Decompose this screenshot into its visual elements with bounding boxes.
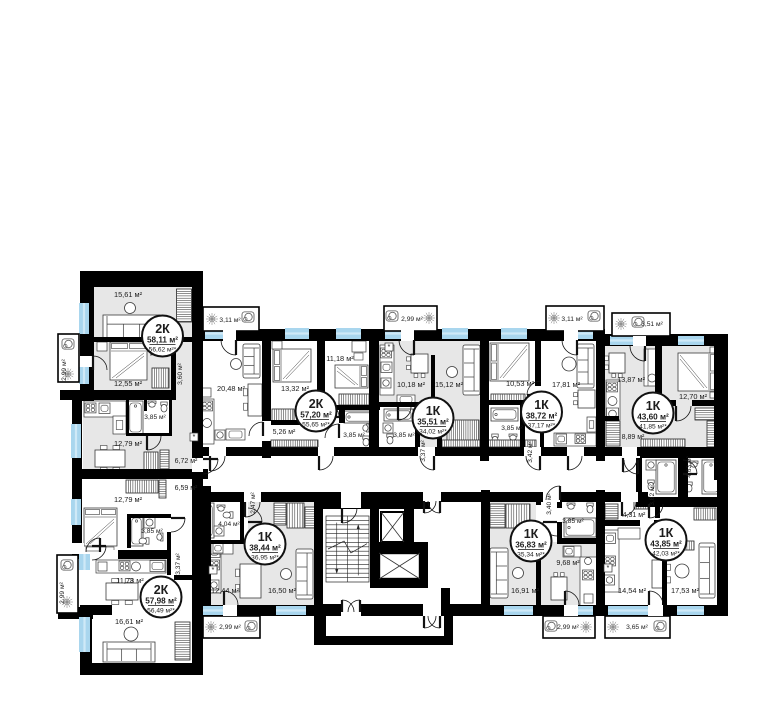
svg-text:3,65 м²: 3,65 м² xyxy=(626,624,648,631)
svg-text:3,37 м²: 3,37 м² xyxy=(420,440,427,462)
svg-text:2,99 м²: 2,99 м² xyxy=(61,358,68,380)
svg-text:3,60 м²: 3,60 м² xyxy=(177,362,184,384)
svg-text:2К: 2К xyxy=(154,583,169,597)
svg-text:*: * xyxy=(388,342,391,351)
svg-text:*: * xyxy=(212,565,215,574)
svg-text:9,68 м²: 9,68 м² xyxy=(556,558,580,567)
svg-text:10,18 м²: 10,18 м² xyxy=(397,380,426,389)
svg-text:55,65 м²*: 55,65 м²* xyxy=(302,422,330,429)
svg-text:56,62 м²*: 56,62 м²* xyxy=(149,347,177,354)
svg-text:4,04 м²: 4,04 м² xyxy=(218,521,240,528)
svg-text:3,82 м²: 3,82 м² xyxy=(649,484,656,506)
svg-text:3,85 м²: 3,85 м² xyxy=(501,425,523,432)
svg-text:1К: 1К xyxy=(426,404,441,418)
svg-text:2,99 м²: 2,99 м² xyxy=(59,581,66,603)
svg-text:3,37 м²: 3,37 м² xyxy=(175,553,182,575)
svg-text:16,61 м²: 16,61 м² xyxy=(115,617,144,626)
svg-text:38,44 м²: 38,44 м² xyxy=(249,543,281,552)
svg-text:12,44 м²: 12,44 м² xyxy=(211,586,240,595)
svg-text:3,85 м²: 3,85 м² xyxy=(144,414,166,421)
svg-text:12,55 м²: 12,55 м² xyxy=(114,379,143,388)
svg-text:36,83 м²: 36,83 м² xyxy=(515,540,547,549)
svg-text:15,61 м²: 15,61 м² xyxy=(114,290,143,299)
svg-text:3,85 м²: 3,85 м² xyxy=(343,432,365,439)
svg-text:12,70 м²: 12,70 м² xyxy=(679,392,708,401)
svg-text:41,85 м²*: 41,85 м²* xyxy=(639,424,667,431)
svg-text:3,40 м²: 3,40 м² xyxy=(546,493,553,515)
svg-text:2,99 м²: 2,99 м² xyxy=(401,316,423,323)
svg-text:10,53 м²: 10,53 м² xyxy=(506,379,535,388)
svg-text:14,54 м²: 14,54 м² xyxy=(618,586,647,595)
svg-text:2,47 м²: 2,47 м² xyxy=(250,492,257,514)
svg-text:8,89 м²: 8,89 м² xyxy=(622,434,645,441)
svg-text:34,02 м²*: 34,02 м²* xyxy=(419,429,447,436)
svg-text:15,12 м²: 15,12 м² xyxy=(435,380,464,389)
svg-text:13,32 м²: 13,32 м² xyxy=(281,384,310,393)
svg-text:16,91 м²: 16,91 м² xyxy=(511,586,540,595)
svg-text:2,99 м²: 2,99 м² xyxy=(557,624,579,631)
svg-text:*: * xyxy=(193,432,196,441)
svg-text:38,72 м²: 38,72 м² xyxy=(526,411,558,420)
svg-text:4,63 м²: 4,63 м² xyxy=(686,456,693,478)
svg-text:57,20 м²: 57,20 м² xyxy=(300,410,332,419)
svg-text:2К: 2К xyxy=(309,397,324,411)
svg-text:35,51 м²: 35,51 м² xyxy=(417,417,449,426)
svg-text:58,11 м²: 58,11 м² xyxy=(147,335,178,344)
svg-text:3,85 м²: 3,85 м² xyxy=(141,528,163,535)
svg-text:2К: 2К xyxy=(155,322,170,336)
svg-text:43,60 м²: 43,60 м² xyxy=(637,412,669,421)
svg-text:1К: 1К xyxy=(534,398,549,412)
svg-text:57,98 м²: 57,98 м² xyxy=(145,596,177,605)
svg-text:3,85 м²: 3,85 м² xyxy=(562,518,584,525)
svg-text:37,17 м²*: 37,17 м²* xyxy=(528,423,556,430)
svg-text:16,50 м²: 16,50 м² xyxy=(268,586,297,595)
svg-text:17,53 м²: 17,53 м² xyxy=(671,586,700,595)
svg-text:*: * xyxy=(607,563,610,572)
svg-text:3,11 м²: 3,11 м² xyxy=(219,317,241,324)
svg-text:3,42 м²: 3,42 м² xyxy=(527,441,534,463)
svg-text:17,81 м²: 17,81 м² xyxy=(552,380,581,389)
svg-text:11,18 м²: 11,18 м² xyxy=(326,354,354,363)
svg-text:3,51 м²: 3,51 м² xyxy=(641,321,663,328)
svg-text:4,31 м²: 4,31 м² xyxy=(623,512,646,519)
svg-text:1К: 1К xyxy=(524,527,539,541)
svg-text:6,59 м²: 6,59 м² xyxy=(175,485,198,492)
svg-text:43,85 м²: 43,85 м² xyxy=(650,539,682,548)
svg-text:36,95 м²*: 36,95 м²* xyxy=(251,555,279,562)
svg-text:6,72 м²: 6,72 м² xyxy=(175,458,198,465)
svg-text:3,85 м²: 3,85 м² xyxy=(393,432,415,439)
svg-text:20,48 м²: 20,48 м² xyxy=(217,384,246,393)
svg-text:1К: 1К xyxy=(646,399,661,413)
svg-text:42,03 м²*: 42,03 м²* xyxy=(652,551,680,558)
svg-text:5,26 м²: 5,26 м² xyxy=(273,429,296,436)
svg-text:13,87 м²: 13,87 м² xyxy=(617,375,646,384)
svg-text:3,11 м²: 3,11 м² xyxy=(561,316,583,323)
svg-text:2,99 м²: 2,99 м² xyxy=(219,624,241,631)
svg-text:11,78 м²: 11,78 м² xyxy=(116,576,144,585)
svg-text:12,79 м²: 12,79 м² xyxy=(114,439,143,448)
svg-text:1К: 1К xyxy=(659,526,674,540)
svg-text:35,34 м²*: 35,34 м²* xyxy=(517,552,545,559)
svg-text:12,79 м²: 12,79 м² xyxy=(114,495,143,504)
svg-text:1К: 1К xyxy=(258,530,273,544)
svg-text:56,49 м²*: 56,49 м²* xyxy=(147,608,175,615)
